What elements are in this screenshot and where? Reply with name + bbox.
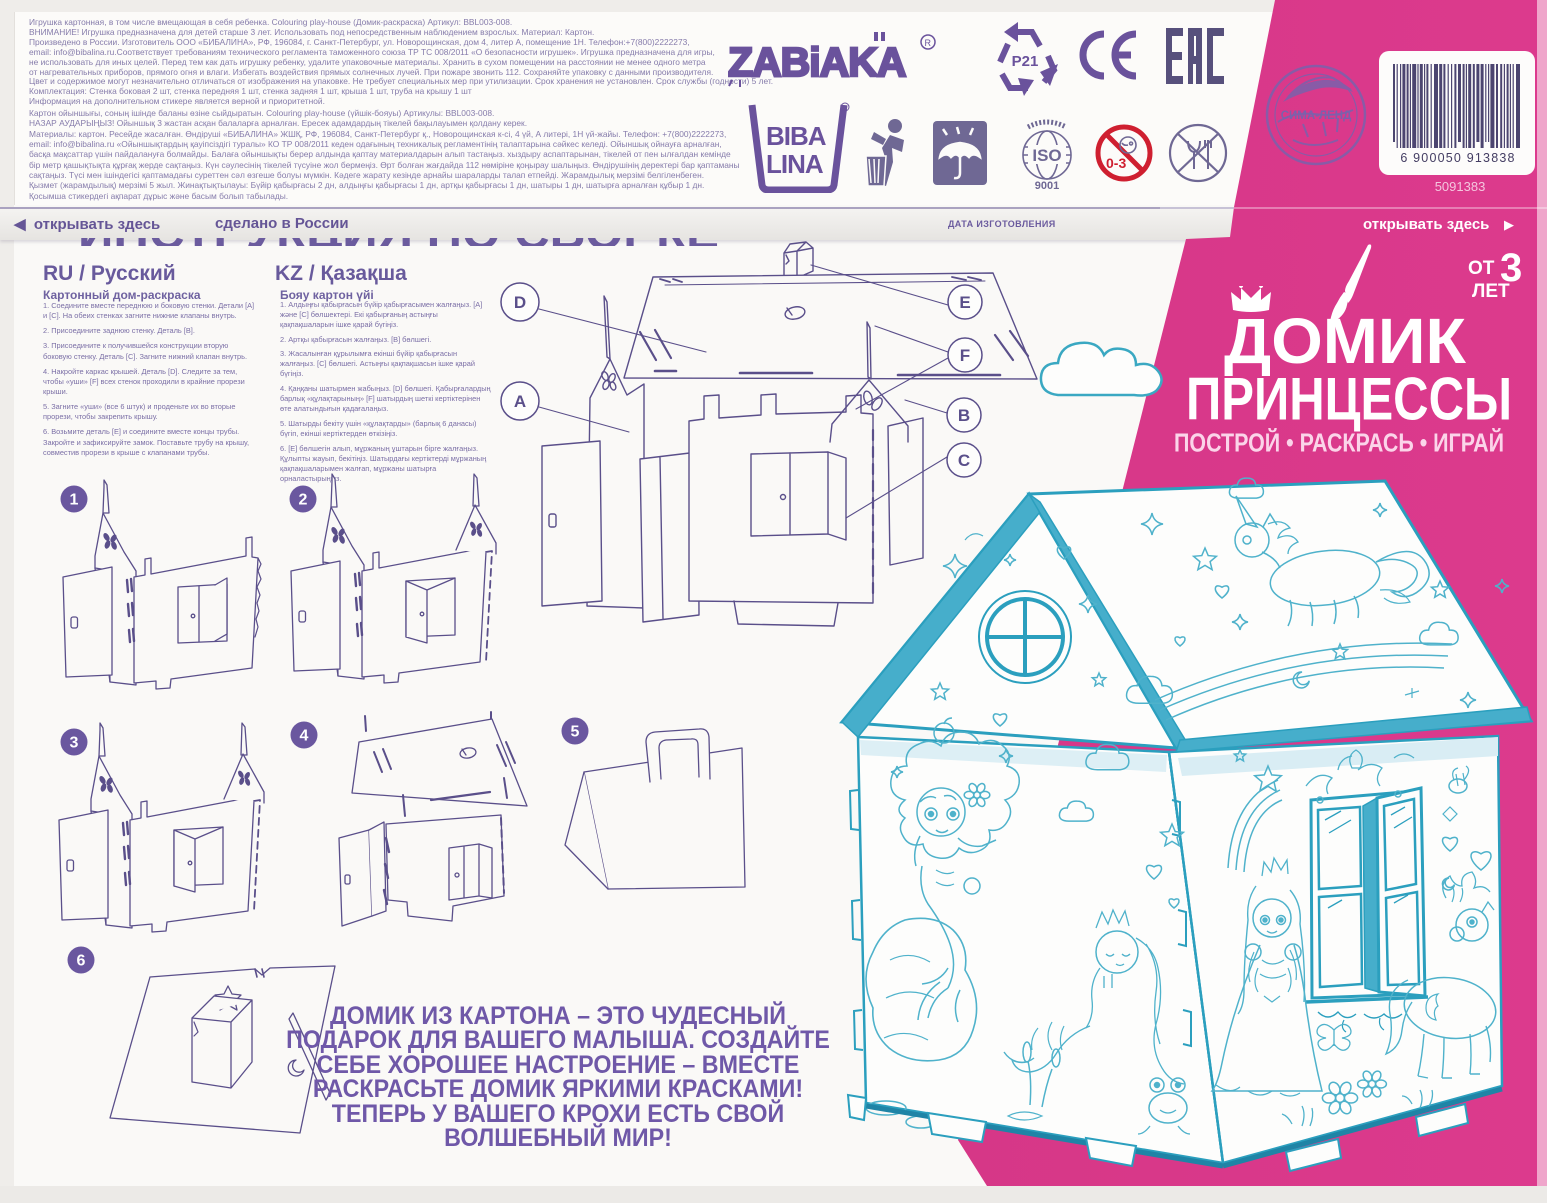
svg-text:R: R: [925, 38, 932, 48]
svg-text:5: 5: [571, 724, 580, 741]
svg-text:ПРИНЦЕССЫ: ПРИНЦЕССЫ: [1186, 366, 1512, 433]
svg-text:LINA: LINA: [766, 149, 824, 179]
svg-text:F: F: [960, 346, 970, 365]
svg-text:ISO: ISO: [1032, 146, 1061, 165]
svg-text:BIBA: BIBA: [766, 121, 827, 151]
svg-text:A: A: [514, 392, 526, 411]
svg-text:0-3: 0-3: [1106, 155, 1126, 171]
svg-text:2: 2: [299, 492, 308, 509]
svg-text:D: D: [514, 293, 526, 312]
svg-text:ZABiAKA: ZABiAKA: [728, 39, 906, 85]
svg-text:1: 1: [70, 492, 79, 509]
svg-text:6: 6: [77, 953, 86, 970]
svg-text:9001: 9001: [1035, 180, 1059, 191]
svg-text:3: 3: [70, 735, 79, 752]
svg-text:СИМА-ЛЕНД: СИМА-ЛЕНД: [1281, 110, 1352, 122]
svg-text:4: 4: [300, 728, 309, 745]
svg-text:P21: P21: [1012, 53, 1039, 70]
svg-text:B: B: [958, 406, 970, 425]
svg-text:E: E: [959, 293, 970, 312]
